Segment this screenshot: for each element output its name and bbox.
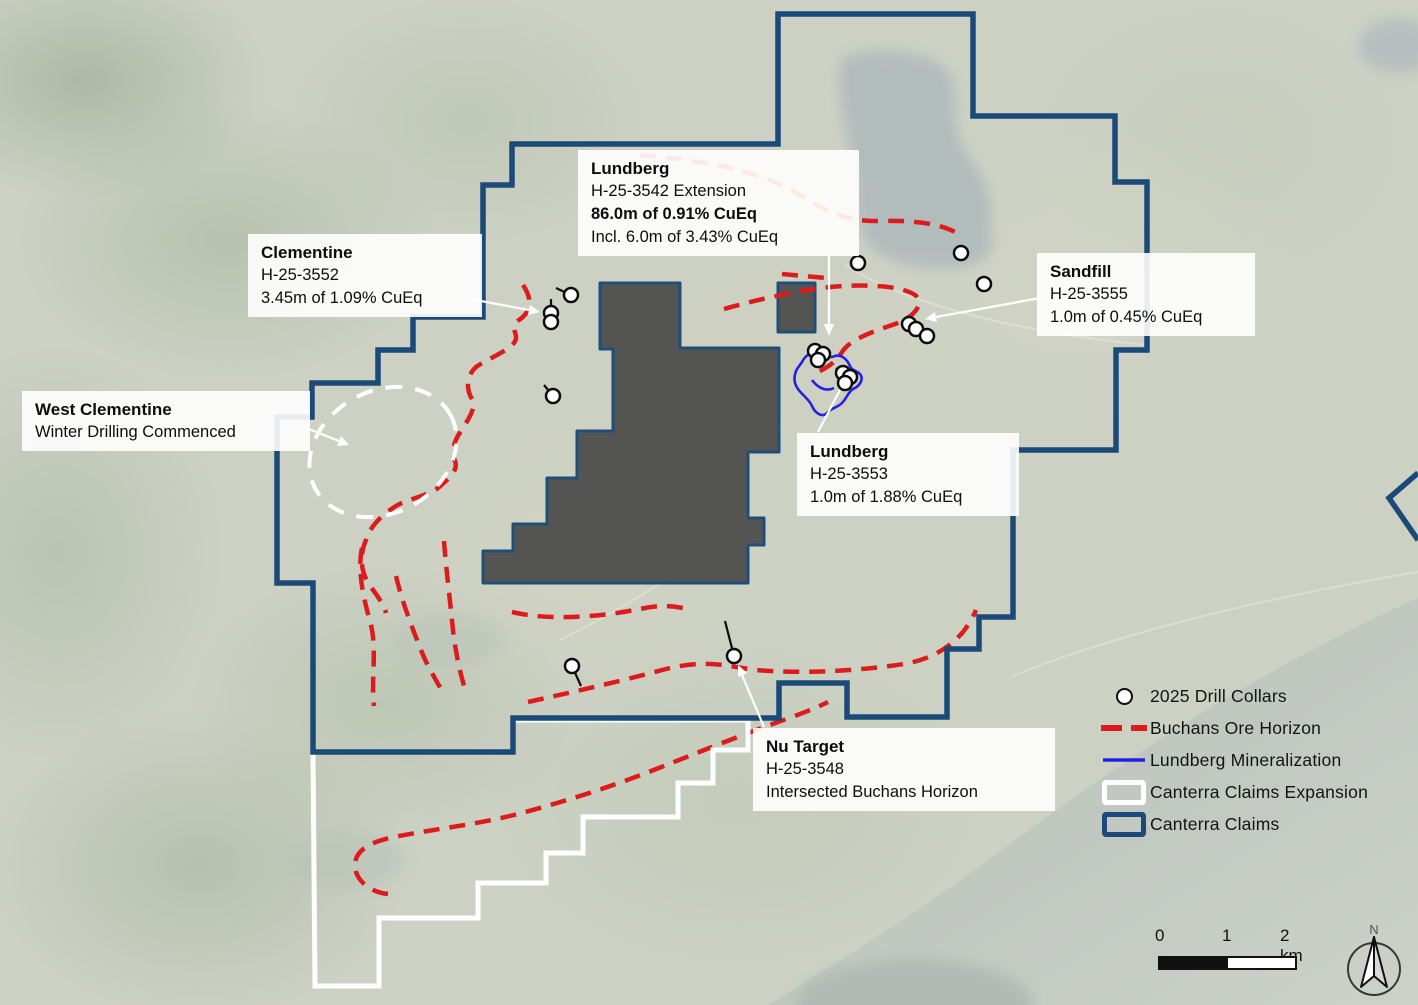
callout-clementine: Clementine H-25-3552 3.45m of 1.09% CuEq: [248, 234, 482, 317]
callout-title: Sandfill: [1050, 260, 1242, 283]
callout-lundberg-3553: Lundberg H-25-3553 1.0m of 1.88% CuEq: [797, 433, 1019, 516]
callout-line-highlight: 86.0m of 0.91% CuEq: [591, 203, 846, 226]
mine-area-polygon: [483, 283, 815, 583]
callout-title: Clementine: [261, 241, 469, 264]
west-clementine-target-ellipse: [286, 361, 480, 542]
legend-label: 2025 Drill Collars: [1150, 686, 1287, 707]
callout-line: Incl. 6.0m of 3.43% CuEq: [591, 226, 846, 249]
callout-line: 1.0m of 1.88% CuEq: [810, 486, 1006, 509]
legend-item-buchans-ore-horizon: Buchans Ore Horizon: [1098, 718, 1368, 738]
scale-bar-segments: [1158, 956, 1297, 970]
callout-line: H-25-3548: [766, 758, 1042, 781]
callout-line: Intersected Buchans Horizon: [766, 781, 1042, 804]
callout-line: H-25-3542 Extension: [591, 180, 846, 203]
legend-label: Canterra Claims: [1150, 814, 1279, 835]
callout-title: West Clementine: [35, 398, 297, 421]
north-arrow: N: [1336, 922, 1412, 1004]
callout-title: Lundberg: [591, 157, 846, 180]
callout-line: 3.45m of 1.09% CuEq: [261, 287, 469, 310]
callout-lundberg-main: Lundberg H-25-3542 Extension 86.0m of 0.…: [578, 150, 859, 256]
legend-item-drill-collars: 2025 Drill Collars: [1098, 686, 1368, 706]
legend-label: Lundberg Mineralization: [1150, 750, 1341, 771]
scale-tick-1: 1: [1222, 926, 1231, 946]
white-outline-box-icon: [1098, 780, 1150, 805]
navy-outline-box-icon: [1098, 812, 1150, 837]
legend-item-canterra-claims: Canterra Claims: [1098, 814, 1368, 834]
north-label-n: N: [1369, 922, 1378, 937]
callout-line: Winter Drilling Commenced: [35, 421, 297, 444]
callout-title: Lundberg: [810, 440, 1006, 463]
drill-collar-icon: [1098, 688, 1150, 705]
map-legend: 2025 Drill Collars Buchans Ore Horizon L…: [1098, 686, 1368, 834]
blue-line-icon: [1098, 756, 1150, 764]
scale-bar: 0 1 2 km: [1152, 926, 1312, 970]
callout-line: H-25-3552: [261, 264, 469, 287]
callout-line: H-25-3553: [810, 463, 1006, 486]
legend-item-lundberg-mineralization: Lundberg Mineralization: [1098, 750, 1368, 770]
callout-west-clementine: West Clementine Winter Drilling Commence…: [22, 391, 310, 451]
scale-bar-labels: 0 1 2 km: [1152, 926, 1312, 948]
legend-label: Canterra Claims Expansion: [1150, 782, 1368, 803]
callout-nu-target: Nu Target H-25-3548 Intersected Buchans …: [753, 728, 1055, 811]
callout-title: Nu Target: [766, 735, 1042, 758]
callout-line: 1.0m of 0.45% CuEq: [1050, 306, 1242, 329]
map-canvas[interactable]: { "map": { "callouts": [ {"id":"lundberg…: [0, 0, 1418, 1005]
red-dashed-line-icon: [1098, 724, 1150, 732]
scale-tick-0: 0: [1155, 926, 1164, 946]
callout-line: H-25-3555: [1050, 283, 1242, 306]
legend-item-claims-expansion: Canterra Claims Expansion: [1098, 782, 1368, 802]
callout-sandfill: Sandfill H-25-3555 1.0m of 0.45% CuEq: [1037, 253, 1255, 336]
legend-label: Buchans Ore Horizon: [1150, 718, 1321, 739]
